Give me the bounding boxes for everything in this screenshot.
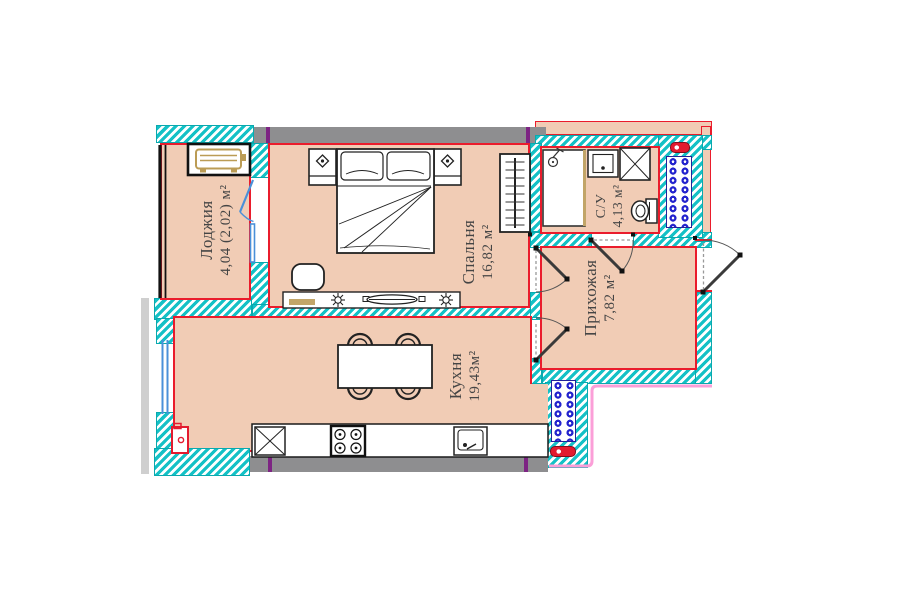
- washing-machine: [620, 148, 650, 180]
- bathroom-sink: [588, 150, 618, 177]
- floor-plan: Лоджия 4,04 (2,02) м² Спальня 16,82 м² С…: [0, 0, 900, 600]
- door-entrance: [695, 240, 743, 295]
- door-bedroom: [534, 246, 570, 293]
- tv-console: [283, 292, 460, 308]
- wardrobe-rack: [500, 154, 530, 232]
- neighbor-boundary-line: [549, 386, 712, 466]
- kitchen-counter: [252, 424, 548, 457]
- toilet: [632, 199, 658, 223]
- stove: [331, 426, 365, 456]
- fridge: [255, 427, 285, 455]
- shower-tub: [543, 148, 585, 226]
- door-kitchen: [534, 318, 570, 363]
- door-bathroom: [589, 238, 634, 274]
- air-conditioner: [188, 144, 250, 175]
- wall-junction-dots: [528, 233, 697, 241]
- nightstand-left: [309, 149, 336, 185]
- bed: [337, 149, 434, 253]
- pouf: [292, 264, 324, 290]
- electrical-panel: [172, 424, 188, 454]
- kitchen-sink: [454, 427, 487, 455]
- nightstand-right: [434, 149, 461, 185]
- plan-linework: [0, 0, 900, 600]
- balcony-door: [240, 180, 255, 262]
- dining-table: [338, 345, 432, 388]
- kitchen-window: [163, 340, 168, 414]
- loggia-glazing-window: [160, 145, 166, 298]
